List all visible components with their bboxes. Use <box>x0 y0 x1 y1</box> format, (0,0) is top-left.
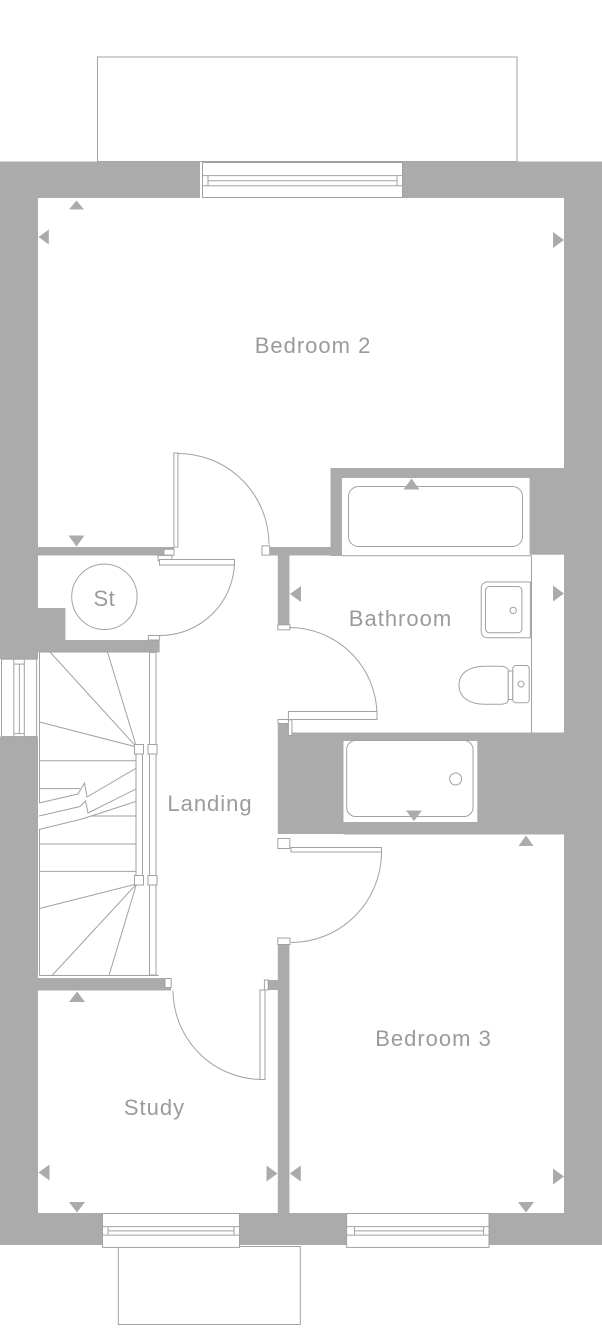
svg-text:Bathroom: Bathroom <box>349 606 452 631</box>
svg-text:Study: Study <box>124 1095 185 1120</box>
svg-text:Bedroom 2: Bedroom 2 <box>255 333 372 358</box>
svg-text:Landing: Landing <box>167 791 252 816</box>
svg-text:St: St <box>94 586 116 611</box>
svg-text:Bedroom 3: Bedroom 3 <box>375 1026 492 1051</box>
